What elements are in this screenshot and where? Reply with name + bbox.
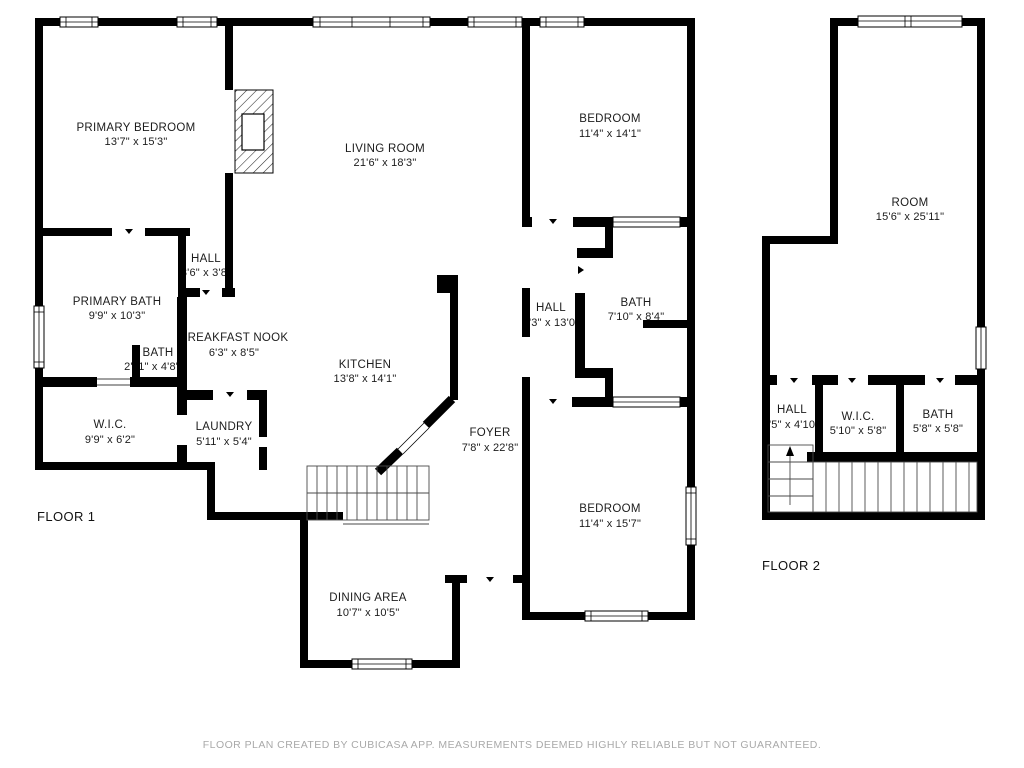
- room-label-wic: W.I.C.: [93, 419, 126, 431]
- room-dims-hall-small: 3'6" x 3'8": [181, 267, 231, 279]
- room-label-breakfast-nook: BREAKFAST NOOK: [180, 332, 289, 344]
- room-dims-primary-bedroom: 13'7" x 15'3": [105, 136, 168, 148]
- room-dims-laundry: 5'11" x 5'4": [196, 436, 252, 448]
- room-label-bedroom-bottom: BEDROOM: [579, 503, 641, 515]
- room-label-room-f2: ROOM: [892, 197, 929, 209]
- foyer-entry-diagonal: [378, 399, 452, 472]
- room-label-hall-right: HALL: [536, 302, 566, 314]
- floor2-room-labels: ROOM 15'6" x 25'11" HALL 3'5" x 4'10" W.…: [763, 197, 963, 437]
- floor-plan-drawing: PRIMARY BEDROOM 13'7" x 15'3" LIVING ROO…: [0, 0, 1024, 768]
- room-label-laundry: LAUNDRY: [196, 421, 253, 433]
- room-dims-hall-f2: 3'5" x 4'10": [763, 419, 820, 431]
- fireplace-icon: [235, 90, 273, 173]
- room-dims-primary-bath: 9'9" x 10'3": [89, 310, 146, 322]
- room-dims-bedroom-top: 11'4" x 14'1": [579, 128, 641, 140]
- room-label-bath-right: BATH: [620, 297, 651, 309]
- room-label-primary-bath: PRIMARY BATH: [73, 296, 162, 308]
- floor-plan-page: PRIMARY BEDROOM 13'7" x 15'3" LIVING ROO…: [0, 0, 1024, 768]
- room-label-bath-f2: BATH: [922, 409, 953, 421]
- room-dims-breakfast-nook: 6'3" x 8'5": [209, 347, 259, 359]
- room-dims-hall-right: 3'3" x 13'0": [523, 317, 580, 329]
- room-dims-wic: 9'9" x 6'2": [85, 434, 135, 446]
- room-label-foyer: FOYER: [469, 427, 510, 439]
- floor1-label: FLOOR 1: [37, 509, 95, 524]
- room-dims-bedroom-bottom: 11'4" x 15'7": [579, 518, 641, 530]
- room-label-living-room: LIVING ROOM: [345, 143, 425, 155]
- room-dims-dining-area: 10'7" x 10'5": [337, 607, 400, 619]
- room-dims-room-f2: 15'6" x 25'11": [876, 211, 944, 223]
- disclaimer-text: FLOOR PLAN CREATED BY CUBICASA APP. MEAS…: [203, 739, 821, 751]
- room-label-dining-area: DINING AREA: [329, 592, 406, 604]
- floor2-label: FLOOR 2: [762, 558, 820, 573]
- room-label-hall-small: HALL: [191, 253, 221, 265]
- room-label-primary-bedroom: PRIMARY BEDROOM: [76, 122, 195, 134]
- room-label-wic-f2: W.I.C.: [841, 411, 874, 423]
- windows: [34, 16, 986, 669]
- room-label-bath-small: BATH: [142, 347, 173, 359]
- room-label-bedroom-top: BEDROOM: [579, 113, 641, 125]
- room-dims-kitchen: 13'8" x 14'1": [334, 373, 397, 385]
- room-dims-foyer: 7'8" x 22'8": [462, 442, 519, 454]
- room-dims-bath-f2: 5'8" x 5'8": [913, 423, 963, 435]
- room-label-kitchen: KITCHEN: [339, 359, 392, 371]
- room-dims-wic-f2: 5'10" x 5'8": [830, 425, 887, 437]
- room-dims-living-room: 21'6" x 18'3": [354, 157, 417, 169]
- window-icon: [34, 16, 986, 669]
- room-label-hall-f2: HALL: [777, 404, 807, 416]
